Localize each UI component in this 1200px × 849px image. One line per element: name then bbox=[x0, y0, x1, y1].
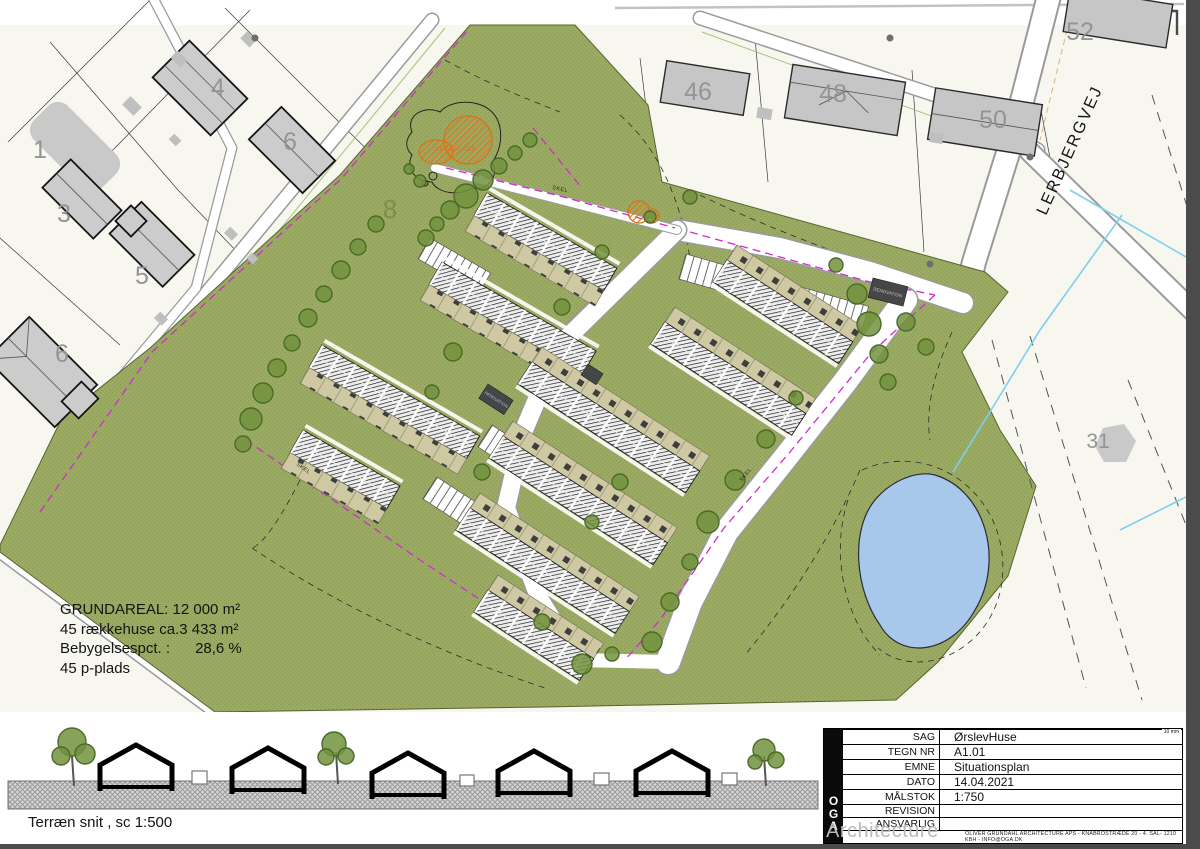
field-value: 14.04.2021 bbox=[940, 775, 1182, 789]
parcel-number-1: 1 bbox=[33, 136, 47, 164]
titleblock-row-emne: EMNE Situationsplan bbox=[843, 760, 1182, 775]
parcel-number-5: 5 bbox=[135, 262, 149, 290]
playground-label: LEGEPLADS bbox=[436, 147, 476, 153]
field-label: DATO bbox=[843, 775, 940, 789]
field-value: 1:750 bbox=[940, 790, 1182, 804]
field-label: EMNE bbox=[843, 760, 940, 774]
page-top-margin bbox=[0, 0, 1200, 25]
field-label: TEGN NR bbox=[843, 745, 940, 759]
field-label: REVISION bbox=[843, 805, 940, 817]
field-label: SAG bbox=[843, 730, 940, 744]
section-caption: Terræn snit , sc 1:500 bbox=[28, 814, 172, 831]
field-value bbox=[940, 805, 1182, 817]
scale-ruler: 10 mm bbox=[843, 729, 1182, 730]
parcel-number-50: 50 bbox=[979, 106, 1007, 134]
field-label: MÅLSTOK bbox=[843, 790, 940, 804]
parcel-number-6b: 6 bbox=[55, 340, 69, 368]
logo-word-architecture: Architecture bbox=[826, 820, 939, 843]
parcel-number-46: 46 bbox=[684, 78, 712, 106]
parcel-number-3: 3 bbox=[57, 200, 71, 228]
titleblock-row-revision: REVISION bbox=[843, 805, 1182, 818]
field-value: ØrslevHuse bbox=[940, 730, 1182, 744]
viewer-edge-right bbox=[1186, 0, 1200, 849]
viewer-edge-bottom bbox=[0, 844, 1200, 849]
logo-letter-o: O bbox=[824, 795, 843, 808]
titleblock-row-tegnnr: TEGN NR A1.01 bbox=[843, 745, 1182, 760]
field-value: Situationsplan bbox=[940, 760, 1182, 774]
parcel-number-52: 52 bbox=[1066, 18, 1094, 46]
field-value: A1.01 bbox=[940, 745, 1182, 759]
parcel-number-6: 6 bbox=[283, 128, 297, 156]
document-page: RENOVATION RENOVATION LEGEPLADS bbox=[0, 0, 1200, 849]
titleblock-row-sag: SAG ØrslevHuse bbox=[843, 730, 1182, 745]
stats-line-grundareal: GRUNDAREAL: 12 000 m² bbox=[60, 600, 242, 620]
stats-line-pplads: 45 p-plads bbox=[60, 659, 242, 679]
site-area-number: 8 bbox=[383, 194, 397, 224]
field-value bbox=[940, 818, 1182, 830]
parcel-number-4: 4 bbox=[211, 74, 225, 102]
site-statistics: GRUNDAREAL: 12 000 m² 45 rækkehuse ca.3 … bbox=[60, 600, 242, 678]
titleblock-row-dato: DATO 14.04.2021 bbox=[843, 775, 1182, 790]
stats-line-raekkehuse: 45 rækkehuse ca.3 433 m² bbox=[60, 620, 242, 640]
title-block: O G A Architecture 10 mm SAG ØrslevHuse … bbox=[823, 728, 1183, 844]
stats-line-bebygelsespct: Bebygelsespct. : 28,6 % bbox=[60, 639, 242, 659]
parcel-number-48: 48 bbox=[819, 80, 847, 108]
parcel-number-31: 31 bbox=[1086, 430, 1109, 453]
ruler-label: 10 mm bbox=[1162, 729, 1181, 735]
titleblock-row-maalstok: MÅLSTOK 1:750 bbox=[843, 790, 1182, 805]
